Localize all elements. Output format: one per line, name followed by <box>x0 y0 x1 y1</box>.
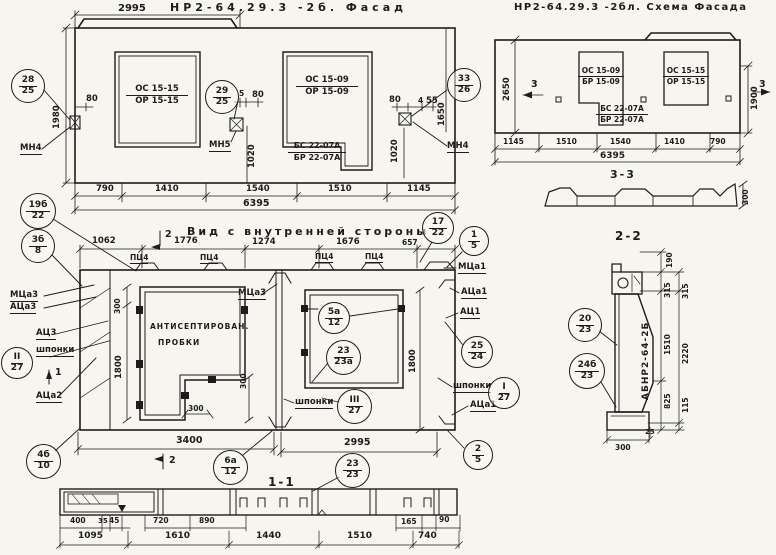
callout-top: II <box>11 353 24 364</box>
callout-2-5: 25 <box>463 440 493 470</box>
callout-bottom: 25 <box>22 87 35 97</box>
callout-1-5: 15 <box>459 226 489 256</box>
label-mtsa3-mid: МЦа3 <box>238 289 266 300</box>
dim-3400: 3400 <box>176 436 202 446</box>
label-atsa2: АЦа2 <box>36 392 62 403</box>
callout-top: 33 <box>455 75 474 86</box>
schema-window-label-right: ОС 15-15ОР 15-15 <box>663 66 709 87</box>
anchor-label-mn5: МН5 <box>209 141 231 152</box>
plate-label-pc4-1: ПЦ4 <box>130 254 148 264</box>
label-ats3: АЦ3 <box>36 329 56 340</box>
blueprint-canvas: НР2-64.29.3 -2б. Фасад НР2-64.29.3 -2бл.… <box>0 0 776 555</box>
dim-190: 190 <box>666 252 674 268</box>
dim-2995i: 2995 <box>344 438 370 448</box>
label-shponki-right: шпонки <box>453 382 491 393</box>
dim-1540s: 1540 <box>610 138 631 146</box>
dim-90: 90 <box>439 516 449 524</box>
callout-4b-10: 4б10 <box>26 444 61 479</box>
callout-bottom: 5 <box>471 242 477 252</box>
callout-bottom: 27 <box>498 394 511 404</box>
section-marker-3-right: 3 <box>759 80 766 90</box>
callout-5a-12: 5а12 <box>318 302 350 334</box>
plate-label-pc4-2: ПЦ4 <box>200 254 218 264</box>
dim-300-top: 300 <box>114 298 122 314</box>
anchor-label-mn4-left: МН4 <box>20 144 42 155</box>
dim-2220: 2220 <box>682 343 690 364</box>
block-label-bs22-07a: БС 22-07А БР 22-07А <box>288 141 346 164</box>
label-bottom: БР 22-07А <box>288 153 346 164</box>
interior-dims <box>75 245 459 457</box>
dim-1410s: 1410 <box>664 138 685 146</box>
dim-45: 45 <box>109 517 119 525</box>
dim-80-mid: 80 <box>252 91 264 100</box>
label-mtsa3-left: МЦа3 <box>10 291 38 302</box>
callout-bottom: 22 <box>32 212 45 222</box>
dim-1062: 1062 <box>92 237 116 246</box>
callout-3b-8: 3б8 <box>21 229 55 263</box>
callout-top: 1 <box>468 231 480 242</box>
label-bottom: БР 22-07А <box>596 115 648 125</box>
dim-1020-mid: 1020 <box>248 144 257 168</box>
dim-1145s: 1145 <box>503 138 524 146</box>
callout-bottom: 12 <box>328 319 341 329</box>
dim-400: 400 <box>70 517 86 525</box>
label-ats1: АЦ1 <box>460 308 480 319</box>
dim-1540: 1540 <box>246 185 270 194</box>
callout-top: I <box>499 383 508 394</box>
callout-24b-23: 24б23 <box>569 353 605 389</box>
dim-825: 825 <box>664 393 672 409</box>
label-top: БС 22-07А <box>288 141 346 153</box>
callout-top: 29 <box>213 87 232 98</box>
dim-115: 115 <box>682 397 690 413</box>
dim-1980: 1980 <box>53 105 62 129</box>
label-top: ОС 15-09 <box>296 75 358 87</box>
label-shponki-left: шпонки <box>36 346 74 357</box>
callout-bottom: 24 <box>471 353 484 363</box>
callout-top: 25 <box>468 342 487 353</box>
callout-iii-27: III27 <box>337 389 372 424</box>
dim-1410: 1410 <box>155 185 179 194</box>
section11-profile <box>60 489 457 515</box>
callout-23-23: 2323 <box>335 453 370 488</box>
label-antiseptic-line1: АНТИСЕПТИРОВАН. <box>150 323 249 331</box>
section-marker-2-bottom: 2 <box>169 456 176 466</box>
callout-25-24: 2524 <box>461 336 493 368</box>
interior-window-left <box>140 287 245 420</box>
dim-1510s: 1510 <box>556 138 577 146</box>
dim-1510v: 1510 <box>664 334 672 355</box>
callout-bottom: 10 <box>37 462 50 472</box>
dim-2995: 2995 <box>118 4 146 14</box>
facade-anchor-marks <box>70 113 411 131</box>
section33-label: 3-3 <box>610 169 636 180</box>
callout-bottom: 5 <box>475 456 481 466</box>
dim-315a: 315 <box>664 282 672 298</box>
plate-label-pc4-4: ПЦ4 <box>365 253 383 263</box>
label-top: ОС 15-15 <box>663 66 709 77</box>
dim-657: 657 <box>402 239 418 247</box>
callout-bottom: 23а <box>334 358 353 368</box>
dim-6395: 6395 <box>243 199 269 209</box>
interior-title: Вид с внутренней стороны <box>187 226 429 237</box>
dim-1650: 1650 <box>438 102 447 126</box>
callout-6a-12: 6а12 <box>213 450 248 485</box>
dim-2650: 2650 <box>503 77 512 101</box>
callout-23-23a: 2323а <box>326 340 361 375</box>
dim-1800-left: 1800 <box>115 355 124 379</box>
callout-bottom: 8 <box>35 247 41 257</box>
plate-label-pc4-3: ПЦ4 <box>315 253 333 263</box>
dim-1440: 1440 <box>256 532 281 541</box>
dim-315b: 315 <box>682 283 690 299</box>
schema-window-label-left: ОС 15-09БР 15-09 <box>578 66 624 87</box>
dim-5: 5 <box>239 90 244 98</box>
interior-leaders <box>44 219 468 491</box>
schema-profile-3-3 <box>545 181 747 209</box>
dim-720: 720 <box>153 517 169 525</box>
callout-bottom: 22 <box>432 229 445 239</box>
dim-300-notch: 300 <box>240 373 248 389</box>
callout-bottom: 25 <box>216 98 229 108</box>
callout-19b-22: 19б22 <box>20 193 56 229</box>
dim-4: 4 <box>418 97 423 105</box>
dim-25: 25 <box>645 429 655 436</box>
callout-i-27: I27 <box>488 377 520 409</box>
callout-top: 28 <box>19 76 38 87</box>
window-label-os15-15: ОС 15-15 ОР 15-15 <box>126 84 188 108</box>
schema-block-label: БС 22-07АБР 22-07А <box>596 104 648 125</box>
callout-top: 24б <box>575 361 600 372</box>
dim-890: 890 <box>199 517 215 525</box>
dim-1800-right: 1800 <box>409 349 418 373</box>
dim-790: 790 <box>96 185 114 194</box>
label-bottom: БР 15-09 <box>578 77 624 87</box>
section-marker-2-top: 2 <box>165 230 172 240</box>
callout-top: 20 <box>576 315 595 326</box>
label-top: ОС 15-09 <box>578 66 624 77</box>
callout-top: 2 <box>472 445 484 456</box>
callout-bottom: 12 <box>224 468 237 478</box>
label-bottom: ОР 15-15 <box>126 96 188 107</box>
callout-top: 19б <box>26 201 51 212</box>
dim-1510b: 1510 <box>347 532 372 541</box>
dim-6395s: 6395 <box>600 152 625 161</box>
callout-top: 5а <box>325 308 343 319</box>
label-bottom: ОР 15-15 <box>663 77 709 87</box>
anchor-label-mn4-right: МН4 <box>447 142 469 153</box>
callout-bottom: 23 <box>581 372 594 382</box>
window-label-os15-09: ОС 15-09 ОР 15-09 <box>296 75 358 99</box>
dim-80-left: 80 <box>86 95 98 104</box>
dim-740: 740 <box>418 532 437 541</box>
callout-33-26: 3326 <box>447 68 481 102</box>
callout-top: 17 <box>429 218 448 229</box>
label-shponki-mid: шпонки <box>295 398 333 409</box>
dim-300-s22: 300 <box>615 444 631 452</box>
label-mtsa1: МЦа1 <box>458 263 486 274</box>
label-top: ОС 15-15 <box>126 84 188 96</box>
label-atsa3-left: АЦа3 <box>10 303 36 314</box>
callout-ii-27: II27 <box>1 347 33 379</box>
callout-top: 3б <box>29 236 48 247</box>
dim-1095: 1095 <box>78 532 103 541</box>
label-top: БС 22-07А <box>596 104 648 115</box>
dim-1776: 1776 <box>174 237 198 246</box>
callout-20-23: 2023 <box>568 308 602 342</box>
dim-165: 165 <box>401 518 417 526</box>
body-label-abnr2-64-2b: АБНР2-64-2Б <box>642 322 651 400</box>
callout-28-25: 2825 <box>11 69 45 103</box>
section-marker-1: 1 <box>55 368 62 378</box>
facade-title: НР2-64.29.3 -2б. Фасад <box>170 2 407 13</box>
callout-bottom: 26 <box>458 86 471 96</box>
label-atsa1: АЦа1 <box>461 288 487 299</box>
dim-80-right: 80 <box>389 96 401 105</box>
dim-1610: 1610 <box>165 532 190 541</box>
section22-label: 2-2 <box>615 230 643 242</box>
callout-bottom: 23 <box>579 326 592 336</box>
dim-1020-right: 1020 <box>391 139 400 163</box>
section-marker-3-left: 3 <box>531 80 538 90</box>
dim-1274: 1274 <box>252 238 276 247</box>
callout-bottom: 27 <box>348 407 361 417</box>
label-antiseptic-line2: ПРОБКИ <box>158 339 200 347</box>
dim-1676: 1676 <box>336 238 360 247</box>
dim-790s: 790 <box>710 138 726 146</box>
dim-1510: 1510 <box>328 185 352 194</box>
facade-leaders <box>42 90 447 149</box>
callout-bottom: 23 <box>346 471 359 481</box>
callout-17-22: 1722 <box>422 212 454 244</box>
schema-title: НР2-64.29.3 -2бл. Схема Фасада <box>514 3 748 13</box>
dim-35: 35 <box>98 518 108 525</box>
section11-label: 1-1 <box>268 476 296 488</box>
drawing-linework <box>0 0 776 555</box>
dim-300-bottom: 300 <box>188 405 204 413</box>
callout-bottom: 27 <box>11 364 24 374</box>
dim-300-profile: 300 <box>742 189 750 205</box>
dim-1145: 1145 <box>407 185 431 194</box>
label-bottom: ОР 15-09 <box>296 87 358 98</box>
callout-29-25: 2925 <box>205 80 239 114</box>
